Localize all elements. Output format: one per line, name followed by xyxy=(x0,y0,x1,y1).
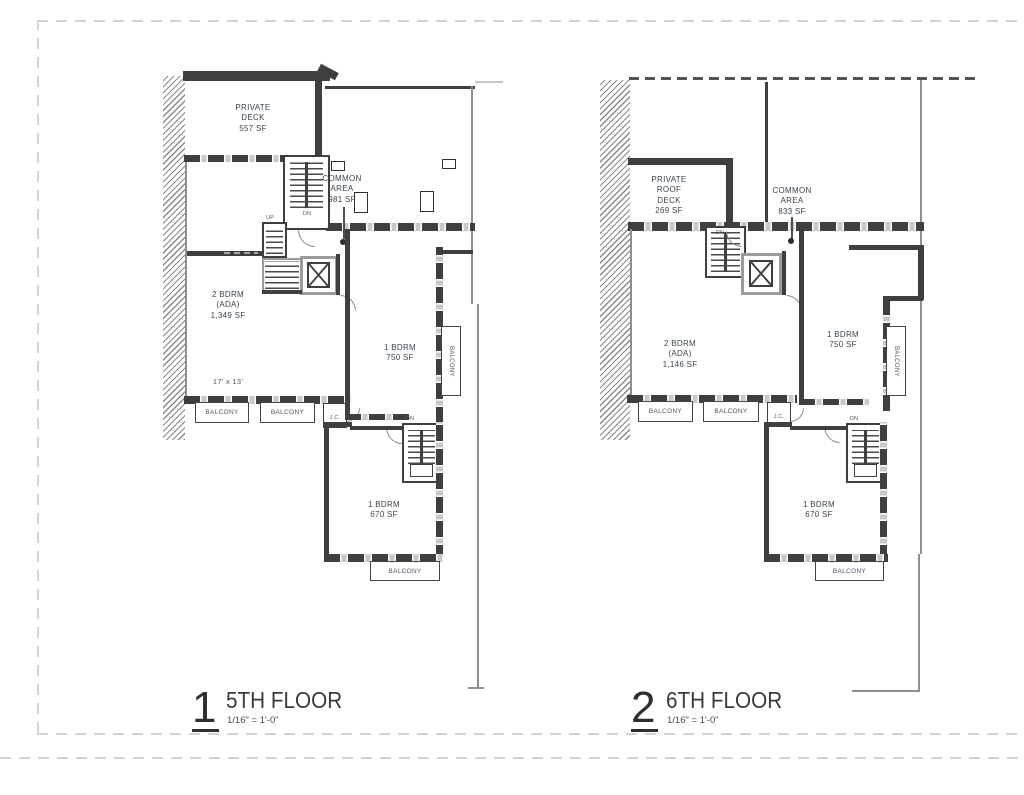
wall xyxy=(630,229,632,399)
balcony-label: BALCONY xyxy=(893,346,899,377)
wall xyxy=(790,426,848,430)
balcony: BALCONY xyxy=(815,561,884,581)
window-wall xyxy=(799,399,869,405)
wall xyxy=(849,245,924,250)
window-wall xyxy=(628,222,924,231)
property-line xyxy=(920,80,922,554)
jc-label: J.C. xyxy=(767,414,791,420)
stair-rail xyxy=(724,232,727,272)
balcony-label: BALCONY xyxy=(649,408,682,415)
wall xyxy=(782,251,786,295)
wall xyxy=(764,422,769,561)
dn-label: DN xyxy=(844,416,864,422)
stair-rail xyxy=(864,430,867,464)
common-area-label: COMMON AREA 833 SF xyxy=(764,186,820,217)
hatched-wall xyxy=(600,80,630,440)
balcony: BALCONY xyxy=(703,401,759,422)
plan-scale: 1/16" = 1'-0" xyxy=(227,715,279,726)
unit-1bdrm-label: 1 BDRM 750 SF xyxy=(812,330,874,351)
property-line xyxy=(852,690,920,692)
leader-dot xyxy=(788,238,794,244)
plan-scale: 1/16" = 1'-0" xyxy=(667,715,719,726)
plan-number-underline xyxy=(192,729,219,732)
wall xyxy=(764,422,792,427)
wall xyxy=(628,158,733,165)
wall xyxy=(918,248,924,300)
window-wall xyxy=(880,422,887,561)
balcony-label: BALCONY xyxy=(714,408,747,415)
balcony: BALCONY xyxy=(886,326,906,396)
plan-title: 5TH FLOOR xyxy=(226,687,342,714)
wall xyxy=(799,229,804,403)
plan-title: 6TH FLOOR xyxy=(666,687,782,714)
unit-2bdrm-label: 2 BDRM (ADA) 1,146 SF xyxy=(641,339,719,370)
stair-landing xyxy=(854,464,877,477)
plan-number-underline xyxy=(631,729,658,732)
private-roof-deck-label: PRIVATE ROOF DECK 269 SF xyxy=(637,175,701,217)
door-arc xyxy=(790,408,804,422)
unit-1bdrm-lower-label: 1 BDRM 670 SF xyxy=(788,500,850,521)
property-line xyxy=(918,554,920,692)
balcony-label: BALCONY xyxy=(833,568,866,575)
elevator-icon xyxy=(749,260,773,287)
balcony: BALCONY xyxy=(638,401,693,422)
plan-number: 1 xyxy=(192,686,216,730)
roof-outline-dashed xyxy=(629,77,975,80)
plan-number: 2 xyxy=(631,686,655,730)
leader-line xyxy=(791,217,793,239)
wall xyxy=(726,158,733,230)
floor-plan-6th: PRIVATE ROOF DECK 269 SF COMMON AREA 833… xyxy=(0,0,1024,795)
drawing-sheet: DN UP COMMON AREA 981 SF PRIVATE DECK 55… xyxy=(0,0,1024,795)
